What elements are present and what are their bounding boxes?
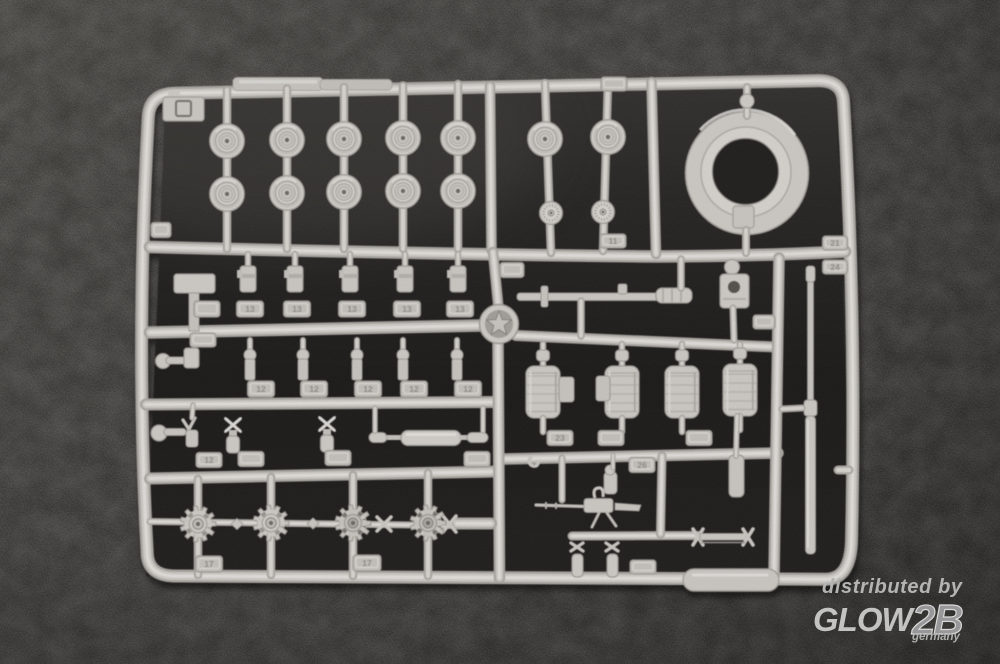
svg-text:distributed by: distributed by	[822, 576, 963, 598]
svg-text:GLOW: GLOW	[813, 601, 915, 638]
svg-text:germany: germany	[911, 631, 961, 643]
